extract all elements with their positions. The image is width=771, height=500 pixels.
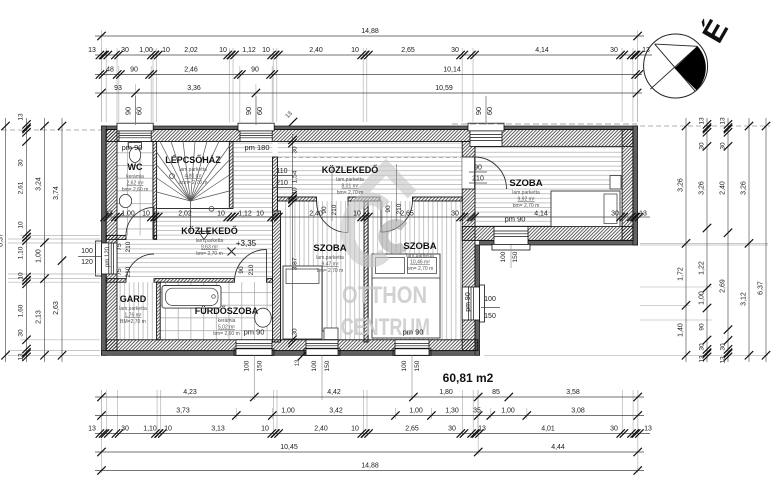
svg-text:3,12: 3,12 bbox=[741, 292, 748, 306]
svg-text:30: 30 bbox=[121, 47, 129, 54]
svg-text:13: 13 bbox=[88, 426, 96, 433]
svg-text:30: 30 bbox=[720, 343, 727, 351]
svg-text:10,45: 10,45 bbox=[280, 444, 298, 451]
svg-text:100: 100 bbox=[484, 296, 496, 303]
svg-text:lam.parketta: lam.parketta bbox=[179, 167, 207, 173]
svg-text:150: 150 bbox=[484, 313, 496, 320]
svg-text:13: 13 bbox=[699, 355, 706, 363]
svg-text:1,22: 1,22 bbox=[699, 261, 706, 275]
svg-text:6,37: 6,37 bbox=[0, 233, 5, 247]
svg-text:90: 90 bbox=[385, 205, 392, 213]
svg-text:4,42: 4,42 bbox=[327, 389, 341, 396]
svg-text:2,65: 2,65 bbox=[405, 426, 419, 433]
svg-text:4,14: 4,14 bbox=[535, 47, 549, 54]
svg-text:13: 13 bbox=[88, 47, 96, 54]
svg-text:WC: WC bbox=[128, 162, 143, 172]
svg-text:10: 10 bbox=[142, 211, 150, 218]
svg-text:bm= 2,70 m: bm= 2,70 m bbox=[513, 203, 540, 209]
svg-text:13: 13 bbox=[18, 113, 25, 121]
svg-text:14,88: 14,88 bbox=[361, 28, 379, 35]
svg-text:100: 100 bbox=[311, 360, 318, 371]
svg-text:2,40: 2,40 bbox=[720, 181, 727, 195]
svg-text:35: 35 bbox=[473, 408, 481, 415]
svg-text:2,65: 2,65 bbox=[401, 47, 415, 54]
svg-text:110: 110 bbox=[276, 168, 287, 175]
svg-text:3,42: 3,42 bbox=[329, 408, 343, 415]
svg-text:30: 30 bbox=[292, 146, 299, 154]
svg-text:1,00: 1,00 bbox=[281, 408, 295, 415]
svg-text:210: 210 bbox=[472, 176, 484, 183]
svg-text:1,30: 1,30 bbox=[445, 408, 459, 415]
svg-text:lam.parketta: lam.parketta bbox=[336, 177, 364, 183]
svg-text:SZOBA: SZOBA bbox=[403, 241, 436, 252]
svg-text:10: 10 bbox=[217, 211, 225, 218]
svg-text:pm 90: pm 90 bbox=[465, 292, 472, 312]
svg-text:30: 30 bbox=[610, 426, 618, 433]
svg-text:KÖZLEKEDŐ: KÖZLEKEDŐ bbox=[322, 164, 379, 175]
svg-text:3,26: 3,26 bbox=[741, 181, 748, 195]
svg-text:pm 90: pm 90 bbox=[403, 328, 424, 337]
svg-text:1,00: 1,00 bbox=[699, 291, 706, 305]
svg-text:bm= 2,70 m: bm= 2,70 m bbox=[196, 251, 223, 257]
svg-text:1,12: 1,12 bbox=[238, 211, 252, 218]
svg-text:2,63: 2,63 bbox=[53, 301, 60, 315]
svg-text:FÜRDŐSZOBA: FÜRDŐSZOBA bbox=[195, 305, 259, 316]
svg-text:lam.parketta: lam.parketta bbox=[316, 255, 344, 261]
svg-text:10: 10 bbox=[353, 211, 361, 218]
svg-text:1,60: 1,60 bbox=[18, 304, 25, 317]
svg-text:10: 10 bbox=[256, 211, 264, 218]
svg-text:3,26: 3,26 bbox=[678, 178, 685, 192]
svg-text:1,72: 1,72 bbox=[678, 267, 685, 281]
svg-text:210: 210 bbox=[276, 180, 288, 187]
svg-text:60,81 m2: 60,81 m2 bbox=[443, 371, 494, 385]
svg-text:bm= 2,60 m: bm= 2,60 m bbox=[213, 331, 240, 337]
svg-text:30: 30 bbox=[699, 343, 706, 351]
svg-text:BM=2,70 m: BM=2,70 m bbox=[120, 319, 146, 325]
svg-text:1,00: 1,00 bbox=[501, 408, 515, 415]
svg-text:10: 10 bbox=[261, 426, 269, 433]
svg-text:1,10: 1,10 bbox=[18, 246, 25, 259]
svg-text:1,00: 1,00 bbox=[36, 249, 43, 263]
svg-text:2,40: 2,40 bbox=[309, 47, 323, 54]
svg-text:lam.parketta: lam.parketta bbox=[512, 190, 540, 196]
svg-text:2,02: 2,02 bbox=[178, 211, 192, 218]
svg-text:13: 13 bbox=[720, 356, 727, 364]
svg-text:10: 10 bbox=[164, 426, 172, 433]
svg-text:90: 90 bbox=[474, 107, 483, 115]
svg-text:3,24: 3,24 bbox=[36, 177, 43, 191]
svg-text:1,40: 1,40 bbox=[678, 323, 685, 337]
svg-text:2,62 m²: 2,62 m² bbox=[127, 181, 144, 187]
svg-text:75: 75 bbox=[116, 268, 123, 276]
svg-text:1,54: 1,54 bbox=[292, 170, 299, 183]
svg-text:210: 210 bbox=[396, 203, 403, 214]
svg-text:3,13: 3,13 bbox=[211, 426, 225, 433]
svg-text:9,92 m²: 9,92 m² bbox=[518, 197, 535, 203]
svg-text:3,08: 3,08 bbox=[571, 408, 585, 415]
svg-text:LÉPCSŐHÁZ: LÉPCSŐHÁZ bbox=[165, 154, 221, 165]
svg-text:75: 75 bbox=[116, 243, 123, 251]
svg-text:KÖZLEKEDŐ: KÖZLEKEDŐ bbox=[181, 225, 238, 236]
svg-text:3,26: 3,26 bbox=[699, 181, 706, 195]
svg-text:1,00: 1,00 bbox=[121, 211, 135, 218]
svg-text:pm 90: pm 90 bbox=[122, 143, 143, 152]
svg-text:10,46 m²: 10,46 m² bbox=[410, 260, 430, 266]
svg-text:OTTHON: OTTHON bbox=[342, 282, 427, 309]
svg-text:pm 90: pm 90 bbox=[505, 215, 526, 224]
svg-text:2,13: 2,13 bbox=[36, 310, 43, 324]
svg-text:30: 30 bbox=[18, 159, 25, 167]
svg-text:1,10: 1,10 bbox=[143, 426, 157, 433]
svg-text:90: 90 bbox=[251, 67, 259, 74]
svg-text:kerámia: kerámia bbox=[126, 174, 144, 180]
svg-text:1,00: 1,00 bbox=[139, 47, 153, 54]
svg-text:30: 30 bbox=[451, 211, 459, 218]
svg-text:150: 150 bbox=[414, 360, 421, 371]
svg-text:4,80 m²: 4,80 m² bbox=[185, 174, 202, 180]
svg-text:3,36: 3,36 bbox=[187, 85, 201, 92]
svg-text:13: 13 bbox=[644, 426, 652, 433]
svg-text:30: 30 bbox=[448, 426, 456, 433]
svg-text:13: 13 bbox=[699, 117, 706, 125]
svg-text:10: 10 bbox=[351, 426, 359, 433]
svg-text:4,44: 4,44 bbox=[551, 444, 565, 451]
svg-text:48: 48 bbox=[106, 67, 114, 74]
svg-text:10: 10 bbox=[262, 47, 270, 54]
svg-text:10,14: 10,14 bbox=[443, 67, 461, 74]
svg-text:10: 10 bbox=[18, 272, 25, 280]
svg-text:9,47 m²: 9,47 m² bbox=[322, 262, 339, 268]
svg-text:3,73: 3,73 bbox=[176, 408, 190, 415]
svg-text:90: 90 bbox=[699, 323, 706, 331]
svg-text:4,14: 4,14 bbox=[534, 211, 548, 218]
svg-text:14,88: 14,88 bbox=[361, 463, 379, 470]
svg-text:10: 10 bbox=[18, 221, 25, 229]
svg-text:2,46: 2,46 bbox=[184, 67, 198, 74]
svg-text:+3,35: +3,35 bbox=[236, 239, 257, 248]
svg-text:30: 30 bbox=[720, 142, 727, 150]
svg-text:13: 13 bbox=[478, 426, 486, 433]
svg-text:bm= 2,70 m: bm= 2,70 m bbox=[337, 190, 364, 196]
svg-text:13: 13 bbox=[105, 211, 113, 218]
svg-text:30: 30 bbox=[611, 211, 619, 218]
svg-text:85: 85 bbox=[492, 389, 500, 396]
svg-text:120: 120 bbox=[81, 259, 93, 266]
svg-text:10: 10 bbox=[292, 187, 299, 195]
svg-text:90: 90 bbox=[321, 206, 328, 214]
svg-text:kerámia: kerámia bbox=[218, 318, 236, 324]
svg-text:150: 150 bbox=[324, 360, 331, 371]
svg-text:210: 210 bbox=[331, 204, 338, 215]
svg-text:8,01 m²: 8,01 m² bbox=[342, 184, 359, 190]
svg-text:30: 30 bbox=[121, 426, 129, 433]
svg-text:60: 60 bbox=[485, 107, 494, 115]
svg-text:2,69: 2,69 bbox=[720, 279, 727, 293]
svg-text:60: 60 bbox=[255, 107, 264, 115]
svg-text:100: 100 bbox=[401, 360, 408, 371]
svg-text:90: 90 bbox=[474, 165, 482, 172]
svg-text:2,61: 2,61 bbox=[18, 181, 25, 194]
svg-text:60: 60 bbox=[135, 107, 144, 115]
svg-text:6,37: 6,37 bbox=[758, 281, 765, 295]
svg-text:pm 180: pm 180 bbox=[244, 143, 269, 152]
svg-text:10: 10 bbox=[351, 47, 359, 54]
svg-text:90: 90 bbox=[238, 266, 245, 274]
svg-text:210: 210 bbox=[125, 266, 132, 277]
svg-text:3,58: 3,58 bbox=[566, 389, 580, 396]
svg-text:210: 210 bbox=[248, 264, 255, 275]
svg-text:210: 210 bbox=[125, 241, 132, 252]
svg-text:13: 13 bbox=[720, 117, 727, 125]
svg-text:150: 150 bbox=[512, 251, 519, 262]
svg-text:2,40: 2,40 bbox=[314, 426, 328, 433]
svg-text:10: 10 bbox=[162, 47, 170, 54]
svg-text:10: 10 bbox=[219, 47, 227, 54]
svg-text:9,63 m²: 9,63 m² bbox=[201, 245, 218, 251]
svg-text:GARD: GARD bbox=[120, 294, 147, 304]
svg-text:4,23: 4,23 bbox=[183, 389, 197, 396]
svg-text:3,87: 3,87 bbox=[292, 257, 299, 270]
svg-text:93: 93 bbox=[114, 85, 122, 92]
svg-text:lam.parketta: lam.parketta bbox=[406, 253, 434, 259]
svg-text:10,59: 10,59 bbox=[435, 85, 453, 92]
svg-text:90: 90 bbox=[130, 67, 138, 74]
svg-text:bm= 2,70 m: bm= 2,70 m bbox=[317, 268, 344, 274]
svg-text:100: 100 bbox=[243, 360, 250, 371]
svg-text:100: 100 bbox=[81, 248, 93, 255]
svg-text:4,01: 4,01 bbox=[541, 426, 555, 433]
svg-text:SZOBA: SZOBA bbox=[509, 178, 542, 189]
svg-text:30: 30 bbox=[451, 47, 459, 54]
svg-text:30: 30 bbox=[292, 328, 299, 336]
svg-text:1,80: 1,80 bbox=[439, 389, 453, 396]
svg-text:pm 90: pm 90 bbox=[244, 328, 265, 337]
svg-text:100: 100 bbox=[500, 251, 507, 262]
svg-text:bm= 2,70 m: bm= 2,70 m bbox=[407, 266, 434, 272]
svg-text:90: 90 bbox=[124, 107, 133, 115]
svg-text:lam.parketta: lam.parketta bbox=[196, 238, 224, 244]
svg-text:90: 90 bbox=[244, 107, 253, 115]
svg-text:150: 150 bbox=[256, 360, 263, 371]
svg-text:30: 30 bbox=[18, 329, 25, 337]
svg-text:pm 120: pm 120 bbox=[105, 246, 111, 267]
svg-text:lam.parketta: lam.parketta bbox=[119, 306, 147, 312]
svg-text:1,00: 1,00 bbox=[409, 408, 423, 415]
svg-text:5,02 m²: 5,02 m² bbox=[218, 325, 235, 331]
svg-text:bm= 2,60 m: bm= 2,60 m bbox=[122, 187, 149, 193]
svg-text:3,74: 3,74 bbox=[53, 186, 60, 200]
svg-text:szm= 2,70 m: szm= 2,70 m bbox=[179, 180, 208, 186]
svg-text:30: 30 bbox=[699, 142, 706, 150]
svg-text:2,02: 2,02 bbox=[184, 47, 198, 54]
svg-text:1,76 m²: 1,76 m² bbox=[125, 313, 142, 319]
svg-text:1,12: 1,12 bbox=[242, 47, 256, 54]
svg-text:13: 13 bbox=[18, 353, 25, 361]
svg-text:13: 13 bbox=[639, 211, 647, 218]
svg-text:SZOBA: SZOBA bbox=[313, 243, 346, 254]
svg-text:30: 30 bbox=[610, 47, 618, 54]
